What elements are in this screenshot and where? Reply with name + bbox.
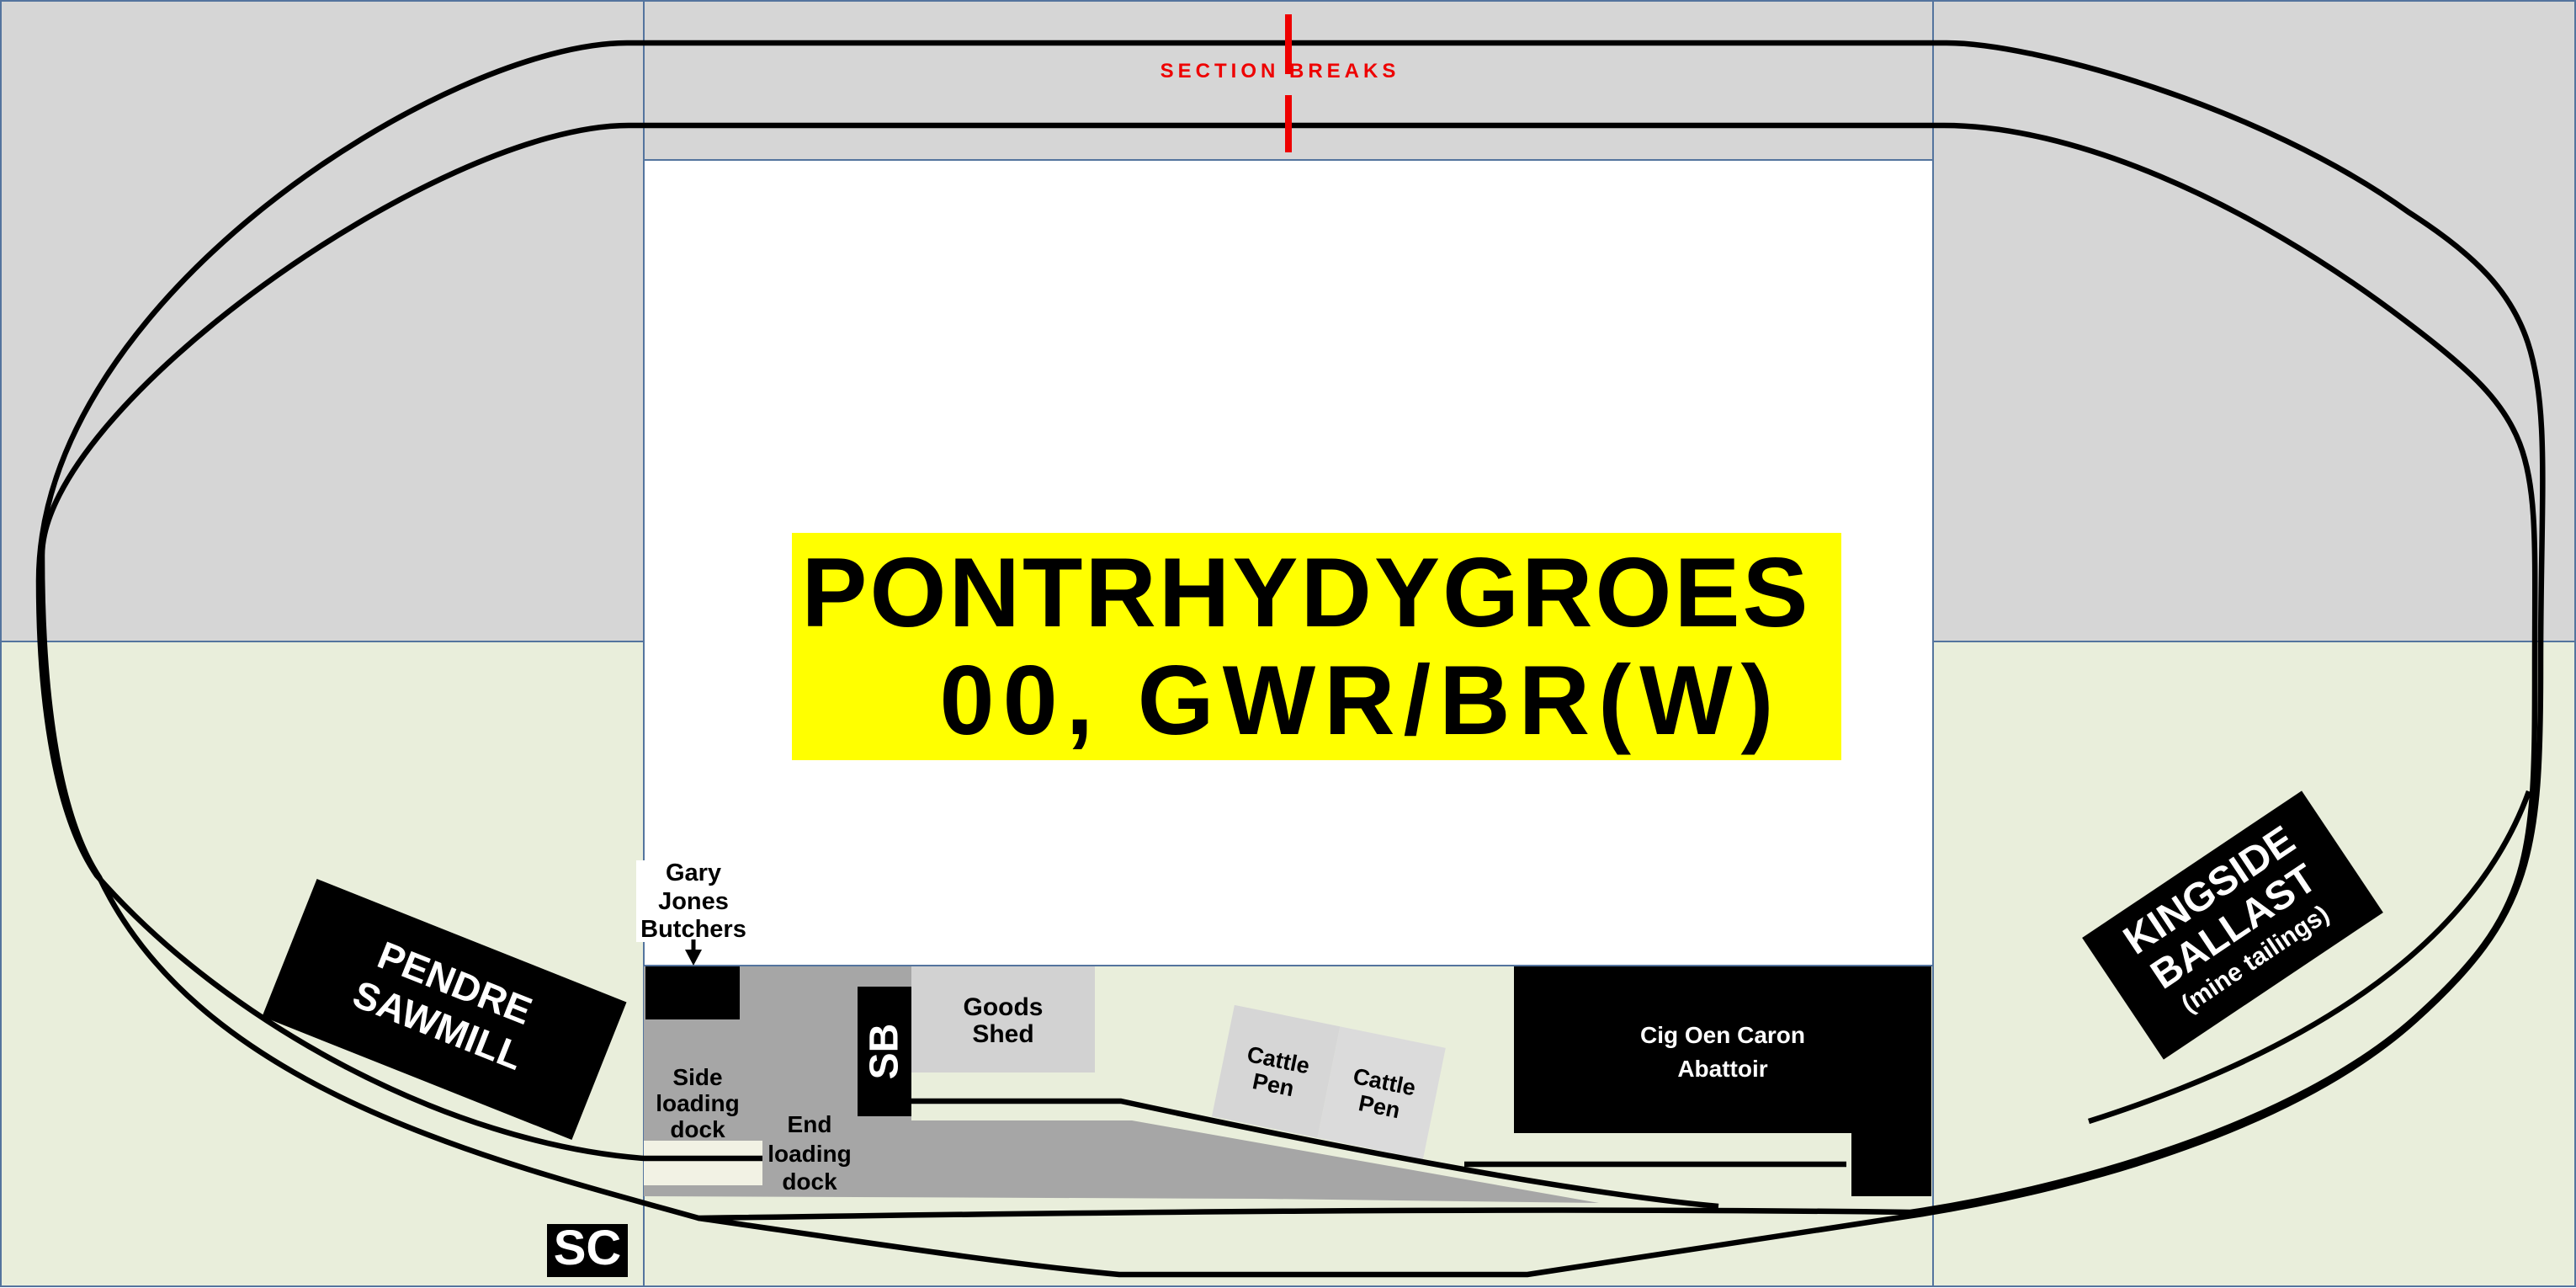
svg-text:Goods: Goods [964,993,1044,1021]
svg-text:Gary: Gary [666,860,721,886]
svg-text:00, GWR/BR(W): 00, GWR/BR(W) [940,645,1782,755]
svg-text:End: End [788,1111,832,1137]
svg-text:SECTION BREAKS: SECTION BREAKS [1161,60,1400,82]
svg-text:loading: loading [656,1090,740,1116]
svg-text:SC: SC [554,1221,622,1275]
svg-text:dock: dock [782,1168,837,1195]
svg-text:Butchers: Butchers [640,916,746,943]
svg-text:Side: Side [672,1064,722,1090]
svg-text:Shed: Shed [972,1020,1033,1048]
svg-text:SB: SB [863,1024,907,1080]
svg-text:Cig Oen Caron: Cig Oen Caron [1640,1022,1805,1048]
svg-text:Abattoir: Abattoir [1677,1056,1767,1082]
svg-text:dock: dock [670,1116,725,1142]
svg-text:PONTRHYDYGROES: PONTRHYDYGROES [801,537,1810,647]
svg-text:loading: loading [767,1141,852,1167]
svg-text:Jones: Jones [658,888,729,915]
